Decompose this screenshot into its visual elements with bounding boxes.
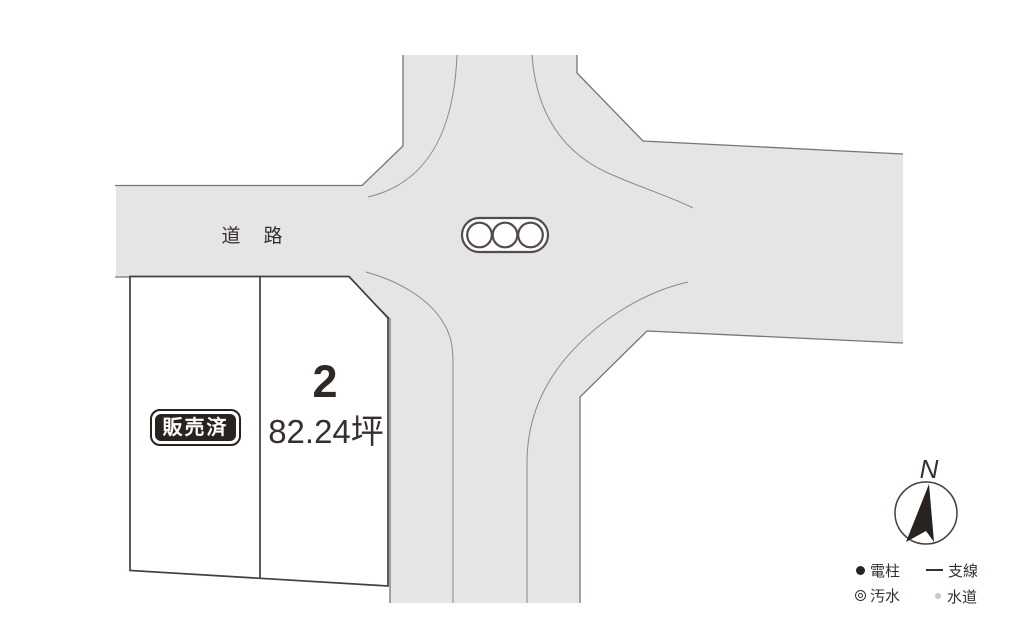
legend-label-guy-wire: 支線 xyxy=(948,560,978,581)
sold-status-label: 販売済 xyxy=(155,414,236,441)
sold-status-badge: 販売済 xyxy=(150,409,241,446)
plot-2-number: 2 xyxy=(262,359,388,404)
compass-needle xyxy=(906,484,934,542)
legend-item-utility-pole: 電柱 xyxy=(856,562,900,578)
legend-item-guy-wire: 支線 xyxy=(926,562,978,578)
traffic-light-icon xyxy=(462,218,548,252)
legend-label-utility-pole: 電柱 xyxy=(870,560,900,581)
water-marker-icon xyxy=(935,593,941,599)
guy-wire-icon xyxy=(926,569,943,571)
road-label: 道 路 xyxy=(188,227,318,246)
utility-pole-icon xyxy=(856,566,865,575)
compass-icon xyxy=(895,482,957,544)
road-edge-bottom-right xyxy=(580,331,903,603)
legend-label-water: 水道 xyxy=(947,586,977,607)
compass-north-label: N xyxy=(909,456,949,482)
legend-label-sewage: 汚水 xyxy=(870,585,900,606)
site-map: 道 路 販売済 2 82.24坪 N 電柱 支線 汚水 水道 xyxy=(0,0,1024,640)
sewage-marker-icon xyxy=(855,590,866,601)
legend-item-water: 水道 xyxy=(935,588,977,604)
road-edge-top-left xyxy=(115,55,403,186)
plot-2-area: 82.24坪 xyxy=(244,414,408,450)
legend-item-sewage: 汚水 xyxy=(855,587,900,603)
map-canvas xyxy=(0,0,1024,640)
